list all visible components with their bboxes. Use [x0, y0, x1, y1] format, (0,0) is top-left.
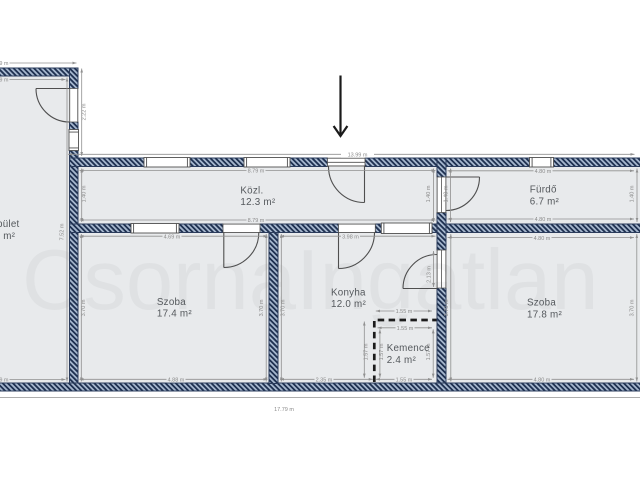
svg-text:4.80 m: 4.80 m: [534, 236, 551, 242]
svg-text:2.13 m: 2.13 m: [427, 266, 433, 283]
svg-text:6.7 m²: 6.7 m²: [530, 196, 560, 207]
svg-text:8.79 m: 8.79 m: [248, 169, 265, 175]
svg-text:Konyha: Konyha: [331, 287, 366, 298]
svg-text:2.59 m: 2.59 m: [0, 378, 9, 384]
svg-text:3.70 m: 3.70 m: [444, 299, 450, 316]
svg-text:1.57 m: 1.57 m: [364, 343, 370, 360]
svg-text:Közl.: Közl.: [240, 185, 263, 196]
svg-text:CsornaIngatlan: CsornaIngatlan: [22, 233, 599, 328]
svg-text:Szoba: Szoba: [527, 298, 556, 309]
svg-text:17.8 m²: 17.8 m²: [527, 310, 562, 321]
svg-text:4.80 m: 4.80 m: [535, 217, 552, 223]
svg-text:3.98 m: 3.98 m: [342, 235, 359, 241]
svg-text:3.70 m: 3.70 m: [81, 299, 87, 316]
svg-text:3.70 m: 3.70 m: [259, 299, 265, 316]
svg-text:2.59 m: 2.59 m: [0, 78, 9, 84]
svg-text:13.99 m: 13.99 m: [348, 152, 368, 158]
svg-text:1.55 m: 1.55 m: [397, 326, 414, 332]
svg-text:Kemence: Kemence: [387, 343, 430, 354]
svg-text:1.40 m: 1.40 m: [81, 185, 87, 202]
svg-text:Fürdő: Fürdő: [530, 184, 557, 195]
svg-text:8.79 m: 8.79 m: [248, 218, 265, 224]
svg-text:1.57 m: 1.57 m: [379, 343, 385, 360]
svg-text:4.80 m: 4.80 m: [535, 169, 552, 175]
svg-text:Melléképület: Melléképület: [0, 219, 20, 230]
svg-text:2.22 m: 2.22 m: [81, 103, 87, 120]
svg-text:1.40 m: 1.40 m: [630, 185, 636, 202]
svg-text:1.40 m: 1.40 m: [444, 185, 450, 202]
svg-text:1.55 m: 1.55 m: [396, 309, 413, 315]
svg-text:4.69 m: 4.69 m: [164, 235, 181, 241]
svg-text:17.4 m²: 17.4 m²: [157, 309, 192, 320]
svg-text:1.40 m: 1.40 m: [426, 185, 432, 202]
svg-text:7.52 m: 7.52 m: [60, 223, 66, 240]
svg-text:3.70 m: 3.70 m: [629, 299, 635, 316]
svg-text:2.35 m: 2.35 m: [316, 378, 333, 384]
svg-text:12.3 m²: 12.3 m²: [240, 197, 275, 208]
svg-text:2.4 m²: 2.4 m²: [387, 355, 417, 366]
svg-text:4.88 m: 4.88 m: [168, 378, 185, 384]
svg-text:1.55 m: 1.55 m: [396, 378, 413, 384]
svg-text:17.79 m: 17.79 m: [274, 407, 294, 413]
svg-text:3.70 m: 3.70 m: [281, 299, 287, 316]
svg-text:2.79 m: 2.79 m: [0, 61, 9, 67]
svg-text:Szoba: Szoba: [157, 297, 186, 308]
svg-text:12.0 m²: 12.0 m²: [331, 299, 366, 310]
svg-text:28.3 m²: 28.3 m²: [0, 231, 16, 242]
svg-text:4.80 m: 4.80 m: [534, 378, 551, 384]
